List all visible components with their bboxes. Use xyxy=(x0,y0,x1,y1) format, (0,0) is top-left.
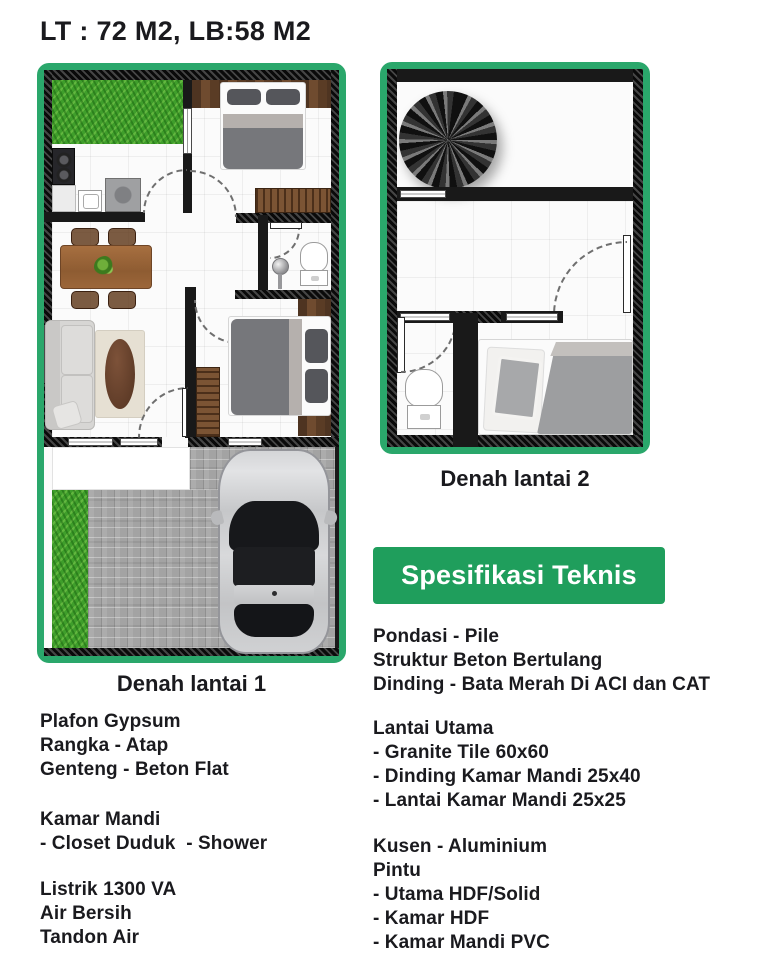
front-window xyxy=(68,438,113,446)
spec-line: Rangka - Atap xyxy=(40,734,360,758)
toilet-button xyxy=(311,276,319,281)
spec-line: Genteng - Beton Flat xyxy=(40,758,360,782)
page-title: LT : 72 M2, LB:58 M2 xyxy=(40,16,311,47)
spec-line: - Closet Duduk - Shower xyxy=(40,832,360,856)
living-rug xyxy=(95,330,145,418)
spec-header-banner: Spesifikasi Teknis xyxy=(373,547,665,604)
side-grass-strip xyxy=(52,490,88,648)
car-windshield xyxy=(229,501,319,551)
floorplan-lantai-2 xyxy=(380,62,650,454)
spec-header-label: Spesifikasi Teknis xyxy=(401,560,637,591)
wall-right xyxy=(633,69,643,447)
spec-line: Air Bersih xyxy=(40,902,360,926)
toilet-button xyxy=(420,414,430,420)
spec-line: - Utama HDF/Solid xyxy=(373,883,763,907)
bed-bedroom2 xyxy=(228,316,331,416)
sofa xyxy=(45,320,95,430)
coffee-table-oval xyxy=(105,339,135,409)
shower-head xyxy=(272,258,289,275)
car-top-view xyxy=(218,449,330,654)
wall-bathroom-west xyxy=(258,215,268,292)
spec-line: Lantai Utama xyxy=(373,717,763,741)
bed-blanket-fold xyxy=(223,114,303,128)
spec-line: Listrik 1300 VA xyxy=(40,878,360,902)
dining-chair xyxy=(108,228,136,246)
floorplan-lantai-1 xyxy=(37,63,346,663)
dining-chair xyxy=(71,228,99,246)
spec-group-bathroom: Kamar Mandi- Closet Duduk - Shower xyxy=(40,808,360,856)
bed-pillow xyxy=(305,329,328,363)
spec-line: Tandon Air xyxy=(40,926,360,950)
spec-group-roof: Plafon GypsumRangka - AtapGenteng - Beto… xyxy=(40,710,360,782)
table-plant xyxy=(94,256,116,278)
sink-basin xyxy=(83,194,99,209)
spec-group-floor: Lantai Utama- Granite Tile 60x60- Dindin… xyxy=(373,717,763,813)
kitchen-counter xyxy=(52,185,76,212)
kitchen-stove xyxy=(52,148,75,185)
bed-pillow xyxy=(305,369,328,403)
spec-line: Kusen - Aluminium xyxy=(373,835,763,859)
spec-group-doors: Kusen - AluminiumPintu- Utama HDF/Solid-… xyxy=(373,835,763,955)
toilet-tank xyxy=(300,270,328,286)
floorplan-2-lot xyxy=(387,69,643,447)
wall-bottom xyxy=(387,435,643,447)
back-garden-grass xyxy=(52,78,183,144)
dining-chair xyxy=(108,291,136,309)
spec-group-utilities: Listrik 1300 VAAir BersihTandon Air xyxy=(40,878,360,950)
flyer-page: LT : 72 M2, LB:58 M2 xyxy=(0,0,768,978)
floorplan-1-lot xyxy=(44,70,339,656)
wall-left xyxy=(387,69,397,447)
bed-upper-bedroom xyxy=(478,339,633,435)
wall-top xyxy=(387,69,643,82)
wall-front-east xyxy=(188,437,339,447)
front-door-leaf xyxy=(182,388,187,437)
wall-right xyxy=(331,70,339,447)
car-antenna xyxy=(272,591,277,596)
front-window xyxy=(228,438,262,446)
spec-line: - Lantai Kamar Mandi 25x25 xyxy=(373,789,763,813)
wall-top xyxy=(44,70,339,80)
bedroom2-dresser xyxy=(196,367,220,437)
kitchen-appliance xyxy=(105,178,141,212)
spec-line: - Kamar Mandi PVC xyxy=(373,931,763,955)
spec-line: Dinding - Bata Merah Di ACI dan CAT xyxy=(373,673,763,697)
toilet xyxy=(300,242,328,272)
spec-line: Pondasi - Pile xyxy=(373,625,763,649)
spec-line: - Dinding Kamar Mandi 25x40 xyxy=(373,765,763,789)
shower-stand xyxy=(278,274,282,289)
bed-pillow xyxy=(492,356,543,421)
car-rear-window xyxy=(234,604,314,637)
spec-line: Struktur Beton Bertulang xyxy=(373,649,763,673)
spec-column-right: Pondasi - PileStruktur Beton BertulangDi… xyxy=(373,625,763,976)
wall-bathroom-bedroom xyxy=(453,313,478,447)
window-bedroom xyxy=(506,313,558,321)
bed-main-bedroom xyxy=(220,82,306,170)
wall-bathroom-south xyxy=(235,290,331,299)
spec-line: Kamar Mandi xyxy=(40,808,360,832)
spec-column-left: Plafon GypsumRangka - AtapGenteng - Beto… xyxy=(40,710,360,971)
sofa-cushion xyxy=(61,325,93,375)
spec-line: - Granite Tile 60x60 xyxy=(373,741,763,765)
bed-duvet xyxy=(223,127,303,169)
bathroom1-door-leaf xyxy=(270,222,302,229)
car-roof xyxy=(233,547,315,587)
toilet-tank xyxy=(407,405,441,429)
spiral-staircase xyxy=(399,91,497,189)
window-stairs xyxy=(400,190,446,198)
bed-pillow xyxy=(266,89,300,105)
plan1-label: Denah lantai 1 xyxy=(37,671,346,697)
wall-kitchen-south xyxy=(44,212,145,222)
porch xyxy=(52,447,190,490)
bed-blanket-fold xyxy=(537,342,632,356)
spec-line: Plafon Gypsum xyxy=(40,710,360,734)
plan2-label: Denah lantai 2 xyxy=(380,466,650,492)
spec-group-structure: Pondasi - PileStruktur Beton BertulangDi… xyxy=(373,625,763,697)
spec-line: Pintu xyxy=(373,859,763,883)
site-edge-right xyxy=(335,447,339,652)
window-kitchen-bedroom1 xyxy=(183,108,192,154)
bed-pillow xyxy=(227,89,261,105)
spec-line: - Kamar HDF xyxy=(373,907,763,931)
bed-blanket-fold xyxy=(289,319,302,415)
bedroom1-dresser xyxy=(255,188,331,213)
dining-chair xyxy=(71,291,99,309)
toilet xyxy=(405,369,443,407)
kitchen-sink xyxy=(78,190,102,212)
front-window xyxy=(120,438,158,446)
